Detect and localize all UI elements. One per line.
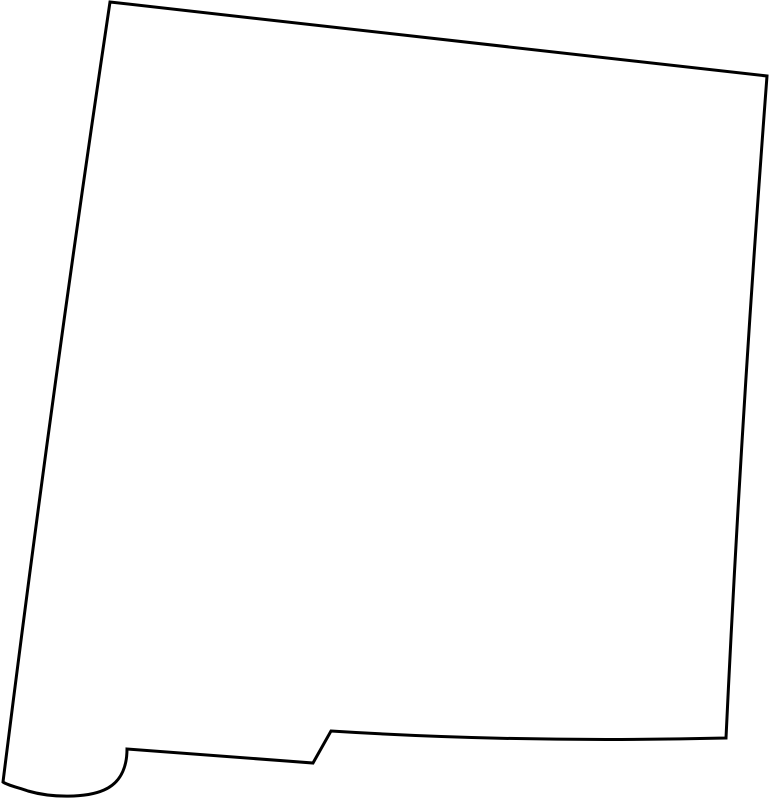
new-mexico-outline-map [0,0,769,800]
map-canvas [0,0,769,800]
new-mexico-state-border-path [3,2,767,796]
